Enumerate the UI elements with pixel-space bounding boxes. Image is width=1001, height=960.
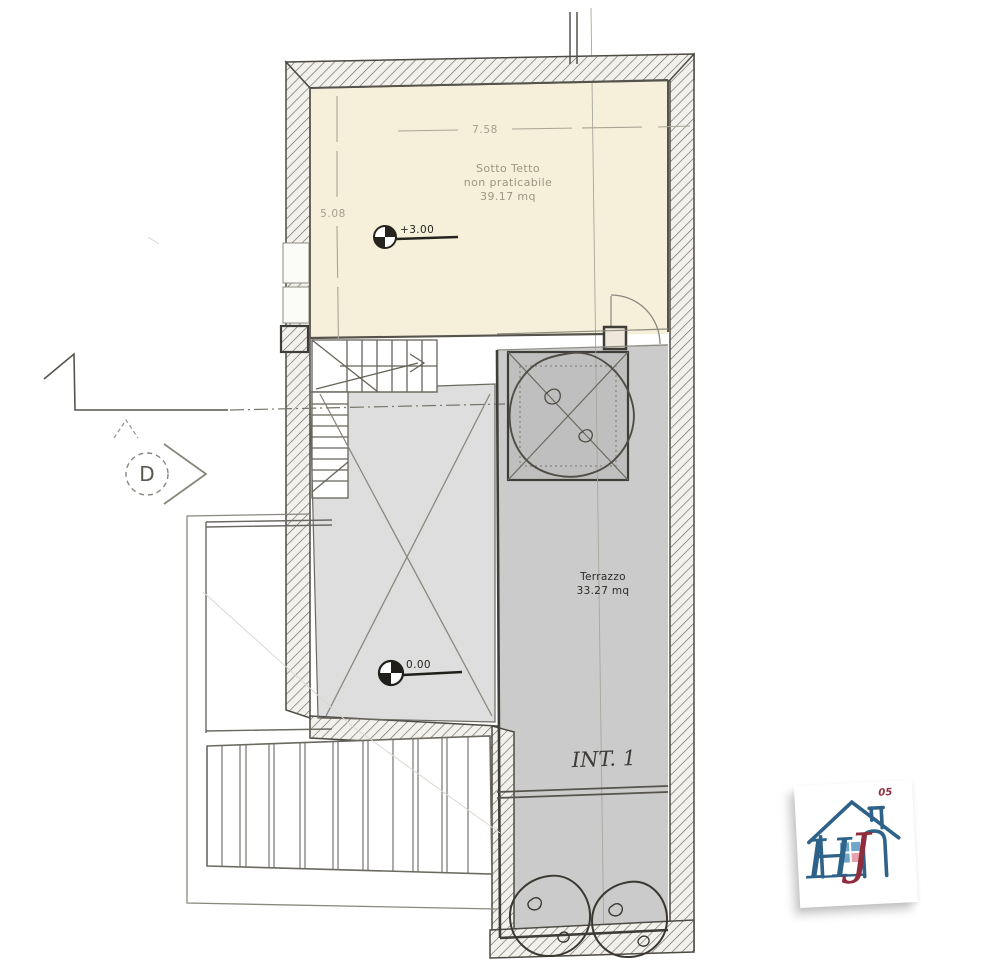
section-arrow-up-icon <box>114 420 138 438</box>
logo-letter-j: J <box>848 826 872 881</box>
level-upper-label: +3.00 <box>400 224 434 236</box>
dim-width-label: 7.58 <box>472 124 498 136</box>
logo-badge: 05 <box>878 787 892 799</box>
wall-right <box>670 54 694 950</box>
svg-text:Terrazzo: Terrazzo <box>579 571 626 583</box>
window-opening <box>283 287 309 323</box>
agency-logo-card: H J 05 <box>794 780 918 908</box>
wall-left <box>286 62 310 718</box>
floor-plan-page: 7.58 5.08 Sotto Tetto non praticabile 39… <box>0 0 1001 960</box>
window-opening <box>283 243 309 283</box>
wall-pier <box>281 326 308 352</box>
left-wall-openings <box>281 243 309 352</box>
dim-height-label: 5.08 <box>320 208 346 220</box>
section-letter: D <box>139 462 154 486</box>
svg-text:33.27 mq: 33.27 mq <box>577 585 630 597</box>
stair-landing <box>312 340 437 392</box>
logo-letter-h: H <box>804 831 854 887</box>
svg-text:39.17 mq: 39.17 mq <box>480 190 536 203</box>
svg-text:non praticabile: non praticabile <box>464 176 552 189</box>
unit-label: INT. 1 <box>570 746 636 772</box>
level-lower-label: 0.00 <box>406 659 431 671</box>
svg-text:Sotto Tetto: Sotto Tetto <box>476 162 540 175</box>
deck <box>207 730 492 880</box>
attic-area <box>310 80 668 338</box>
section-marker-arrow-icon <box>164 444 206 504</box>
